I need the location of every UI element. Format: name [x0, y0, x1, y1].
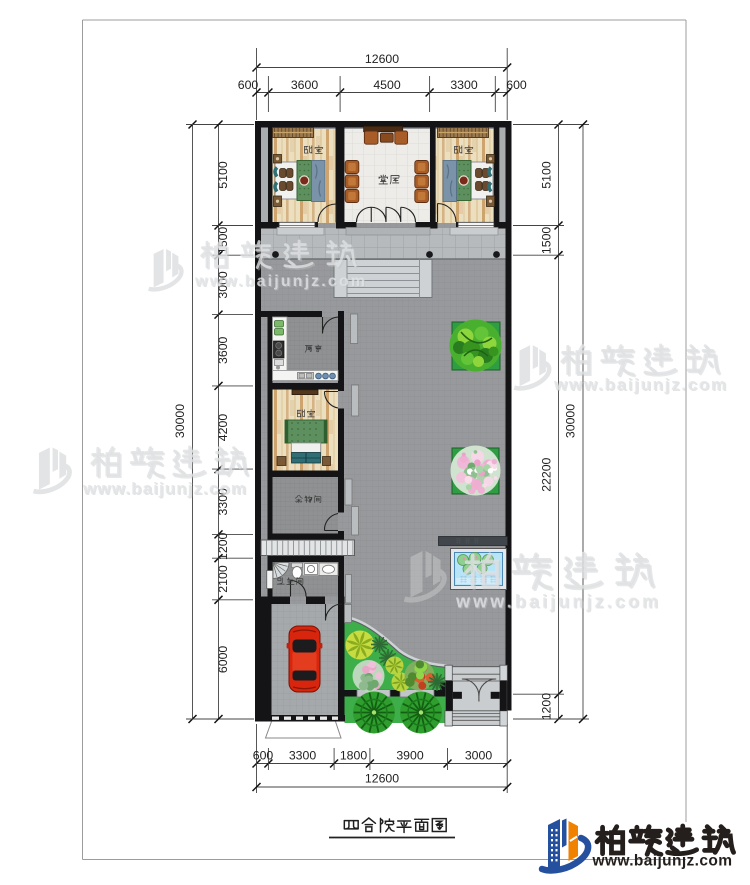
svg-text:4200: 4200 — [216, 414, 230, 442]
svg-text:1500: 1500 — [540, 227, 554, 255]
svg-text:3900: 3900 — [396, 749, 424, 763]
svg-text:3600: 3600 — [291, 78, 319, 92]
svg-text:3300: 3300 — [289, 749, 317, 763]
svg-text:www.baijunjz.com: www.baijunjz.com — [592, 853, 733, 870]
svg-text:1800: 1800 — [340, 749, 368, 763]
svg-text:2100: 2100 — [216, 565, 230, 593]
svg-text:22200: 22200 — [540, 457, 554, 491]
svg-text:600: 600 — [238, 78, 259, 92]
svg-text:3600: 3600 — [216, 336, 230, 364]
svg-text:3000: 3000 — [465, 749, 493, 763]
svg-text:600: 600 — [506, 78, 527, 92]
svg-text:12600: 12600 — [365, 52, 399, 66]
svg-text:600: 600 — [253, 749, 274, 763]
svg-text:6000: 6000 — [216, 646, 230, 674]
svg-text:5100: 5100 — [216, 161, 230, 189]
svg-text:30000: 30000 — [564, 404, 578, 438]
svg-text:3300: 3300 — [450, 78, 478, 92]
svg-text:www.baijunjz.com: www.baijunjz.com — [455, 592, 658, 612]
svg-text:1200: 1200 — [540, 693, 554, 721]
svg-text:www.baijunjz.com: www.baijunjz.com — [82, 479, 246, 498]
svg-text:4500: 4500 — [373, 78, 401, 92]
svg-text:30000: 30000 — [173, 404, 187, 438]
svg-text:5100: 5100 — [540, 161, 554, 189]
svg-text:12600: 12600 — [365, 772, 399, 786]
svg-text:1200: 1200 — [216, 532, 230, 560]
